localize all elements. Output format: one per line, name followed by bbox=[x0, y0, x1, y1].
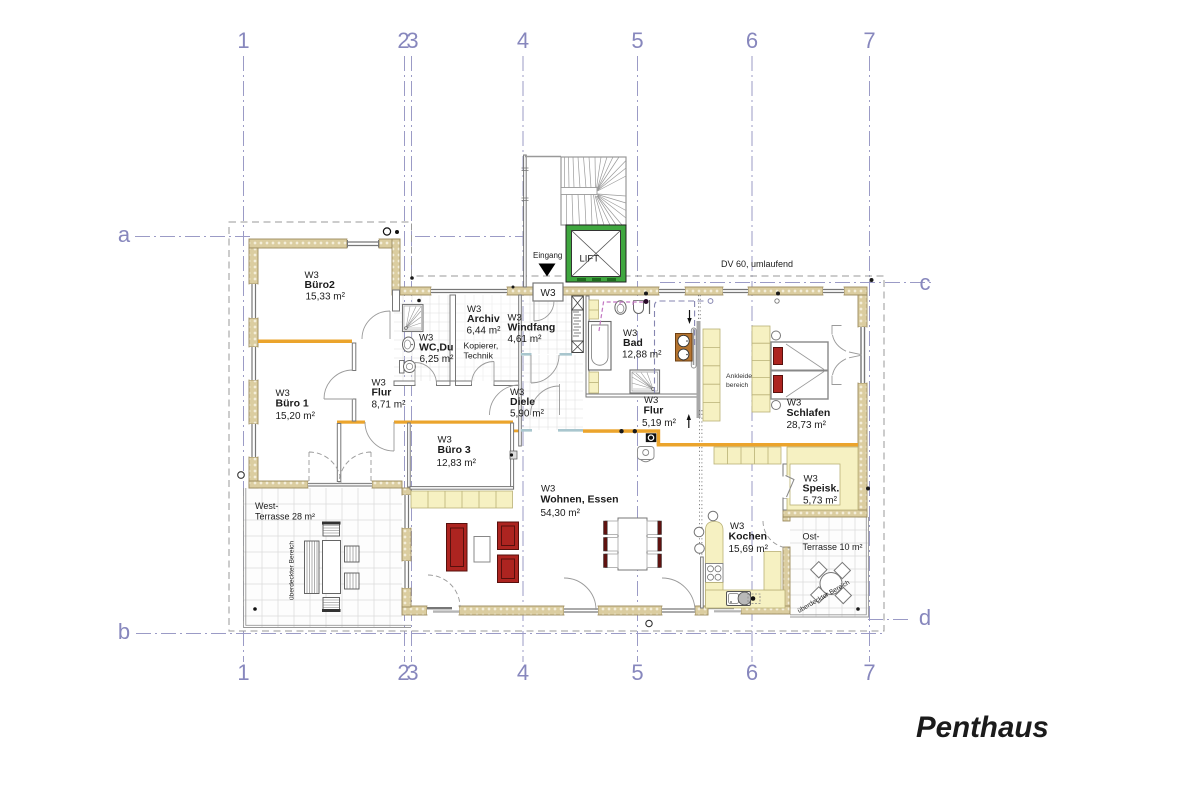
svg-text:5,73 m²: 5,73 m² bbox=[803, 496, 838, 507]
svg-text:W3: W3 bbox=[541, 288, 556, 299]
svg-text:überdeckter Bereich: überdeckter Bereich bbox=[289, 541, 296, 600]
svg-text:LIFT: LIFT bbox=[580, 254, 600, 265]
svg-text:6: 6 bbox=[746, 660, 758, 685]
svg-text:8,71 m²: 8,71 m² bbox=[372, 400, 407, 411]
svg-text:5: 5 bbox=[631, 28, 643, 53]
svg-text:West-: West- bbox=[255, 501, 278, 511]
svg-text:Ost-: Ost- bbox=[803, 532, 820, 542]
svg-text:Penthaus: Penthaus bbox=[916, 711, 1049, 744]
svg-text:c: c bbox=[920, 270, 931, 295]
svg-text:3: 3 bbox=[406, 28, 418, 53]
svg-text:Flur: Flur bbox=[372, 387, 392, 399]
svg-text:54,30 m²: 54,30 m² bbox=[541, 508, 581, 519]
svg-text:Terrasse 10 m²: Terrasse 10 m² bbox=[803, 542, 863, 552]
svg-text:Wohnen, Essen: Wohnen, Essen bbox=[541, 494, 619, 506]
svg-text:Büro 3: Büro 3 bbox=[438, 444, 471, 456]
svg-text:1: 1 bbox=[237, 660, 249, 685]
svg-text:15,20 m²: 15,20 m² bbox=[276, 411, 316, 422]
svg-text:Eingang: Eingang bbox=[533, 251, 562, 260]
svg-text:Archiv: Archiv bbox=[467, 313, 500, 325]
svg-text:15,69 m²: 15,69 m² bbox=[729, 544, 769, 555]
svg-text:7: 7 bbox=[863, 28, 875, 53]
svg-text:7: 7 bbox=[863, 660, 875, 685]
svg-text:Diele: Diele bbox=[510, 396, 535, 408]
svg-text:5,90 m²: 5,90 m² bbox=[510, 409, 545, 420]
svg-text:Flur: Flur bbox=[644, 405, 664, 417]
svg-text:5,19 m²: 5,19 m² bbox=[642, 418, 677, 429]
svg-text:28,73 m²: 28,73 m² bbox=[787, 420, 827, 431]
svg-text:Schlafen: Schlafen bbox=[787, 407, 831, 419]
svg-text:4: 4 bbox=[517, 660, 529, 685]
svg-text:6: 6 bbox=[746, 28, 758, 53]
svg-text:Kopierer,: Kopierer, bbox=[464, 341, 499, 351]
svg-text:b: b bbox=[118, 619, 130, 644]
svg-text:Büro2: Büro2 bbox=[305, 279, 335, 291]
svg-text:a: a bbox=[118, 222, 131, 247]
svg-text:4,61 m²: 4,61 m² bbox=[508, 334, 543, 345]
svg-text:Technik: Technik bbox=[464, 351, 494, 361]
svg-text:Speisk.: Speisk. bbox=[803, 483, 840, 495]
svg-text:Terrasse 28 m²: Terrasse 28 m² bbox=[255, 512, 315, 522]
svg-text:3: 3 bbox=[406, 660, 418, 685]
svg-text:WC,Du: WC,Du bbox=[419, 342, 453, 354]
svg-text:Büro 1: Büro 1 bbox=[276, 398, 309, 410]
svg-text:12,88 m²: 12,88 m² bbox=[622, 350, 662, 361]
svg-text:Windfang: Windfang bbox=[508, 322, 556, 334]
svg-text:Kochen: Kochen bbox=[729, 531, 768, 543]
svg-text:6,44 m²: 6,44 m² bbox=[467, 326, 502, 337]
svg-text:1: 1 bbox=[237, 28, 249, 53]
svg-text:6,25 m²: 6,25 m² bbox=[420, 354, 455, 365]
svg-text:4: 4 bbox=[517, 28, 529, 53]
svg-text:Ankleide: Ankleide bbox=[726, 373, 752, 380]
svg-text:DV 60, umlaufend: DV 60, umlaufend bbox=[721, 259, 793, 269]
svg-text:15,33 m²: 15,33 m² bbox=[306, 292, 346, 303]
svg-text:5: 5 bbox=[631, 660, 643, 685]
svg-text:Bad: Bad bbox=[623, 337, 643, 349]
svg-text:bereich: bereich bbox=[726, 382, 749, 389]
svg-text:d: d bbox=[919, 605, 931, 630]
svg-text:12,83 m²: 12,83 m² bbox=[437, 458, 477, 469]
